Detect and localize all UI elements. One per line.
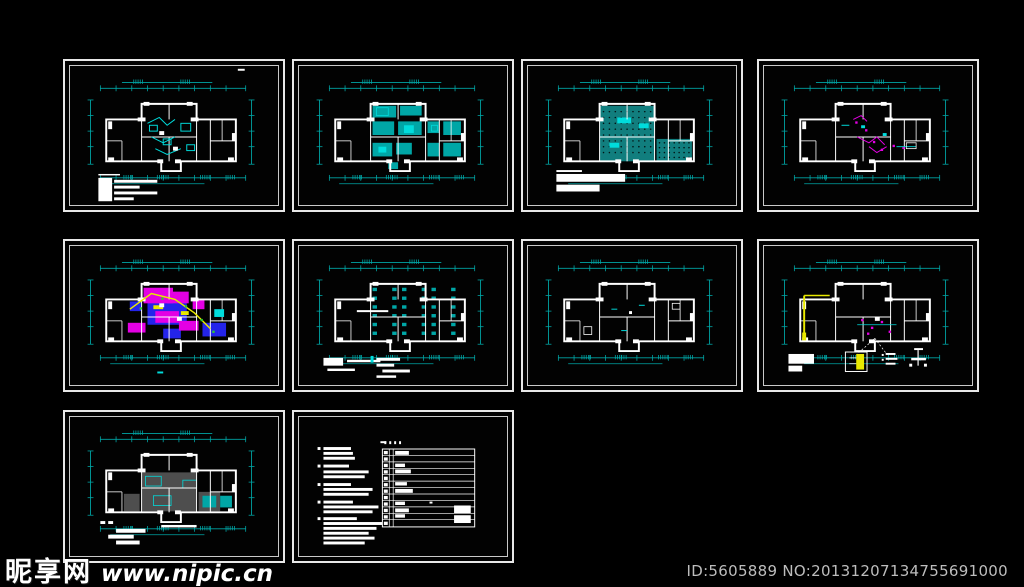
drawing-sheet-5[interactable]	[63, 239, 285, 392]
drawing-sheet-3[interactable]	[521, 59, 743, 212]
drawing-sheet-2[interactable]	[292, 59, 514, 212]
drawing-sheet-8[interactable]	[757, 239, 979, 392]
sheet-9-drawing	[65, 412, 283, 561]
sheet-1-drawing	[65, 61, 283, 210]
sheet-5-drawing	[65, 241, 283, 390]
sheet-10-drawing	[294, 412, 512, 561]
sheet-8-drawing	[759, 241, 977, 390]
drawing-sheet-9[interactable]	[63, 410, 285, 563]
drawing-sheet-6[interactable]	[292, 239, 514, 392]
sheet-7-drawing	[523, 241, 741, 390]
sheet-2-drawing	[294, 61, 512, 210]
watermark: 昵享网 www.nipic.cn	[5, 550, 273, 587]
drawing-sheet-1[interactable]	[63, 59, 285, 212]
sheet-3-drawing	[523, 61, 741, 210]
sheet-6-drawing	[294, 241, 512, 390]
drawing-sheet-4[interactable]	[757, 59, 979, 212]
watermark-site-name: 昵享网	[5, 550, 92, 587]
drawing-sheet-10[interactable]	[292, 410, 514, 563]
watermark-site-url: www.nipic.cn	[101, 561, 273, 587]
cad-preview-canvas: 昵享网 www.nipic.cn ID:5605889 NO:201312071…	[0, 0, 1024, 587]
drawing-sheet-7[interactable]	[521, 239, 743, 392]
sheet-4-drawing	[759, 61, 977, 210]
image-id-text: ID:5605889 NO:20131207134755691000	[687, 562, 1009, 580]
